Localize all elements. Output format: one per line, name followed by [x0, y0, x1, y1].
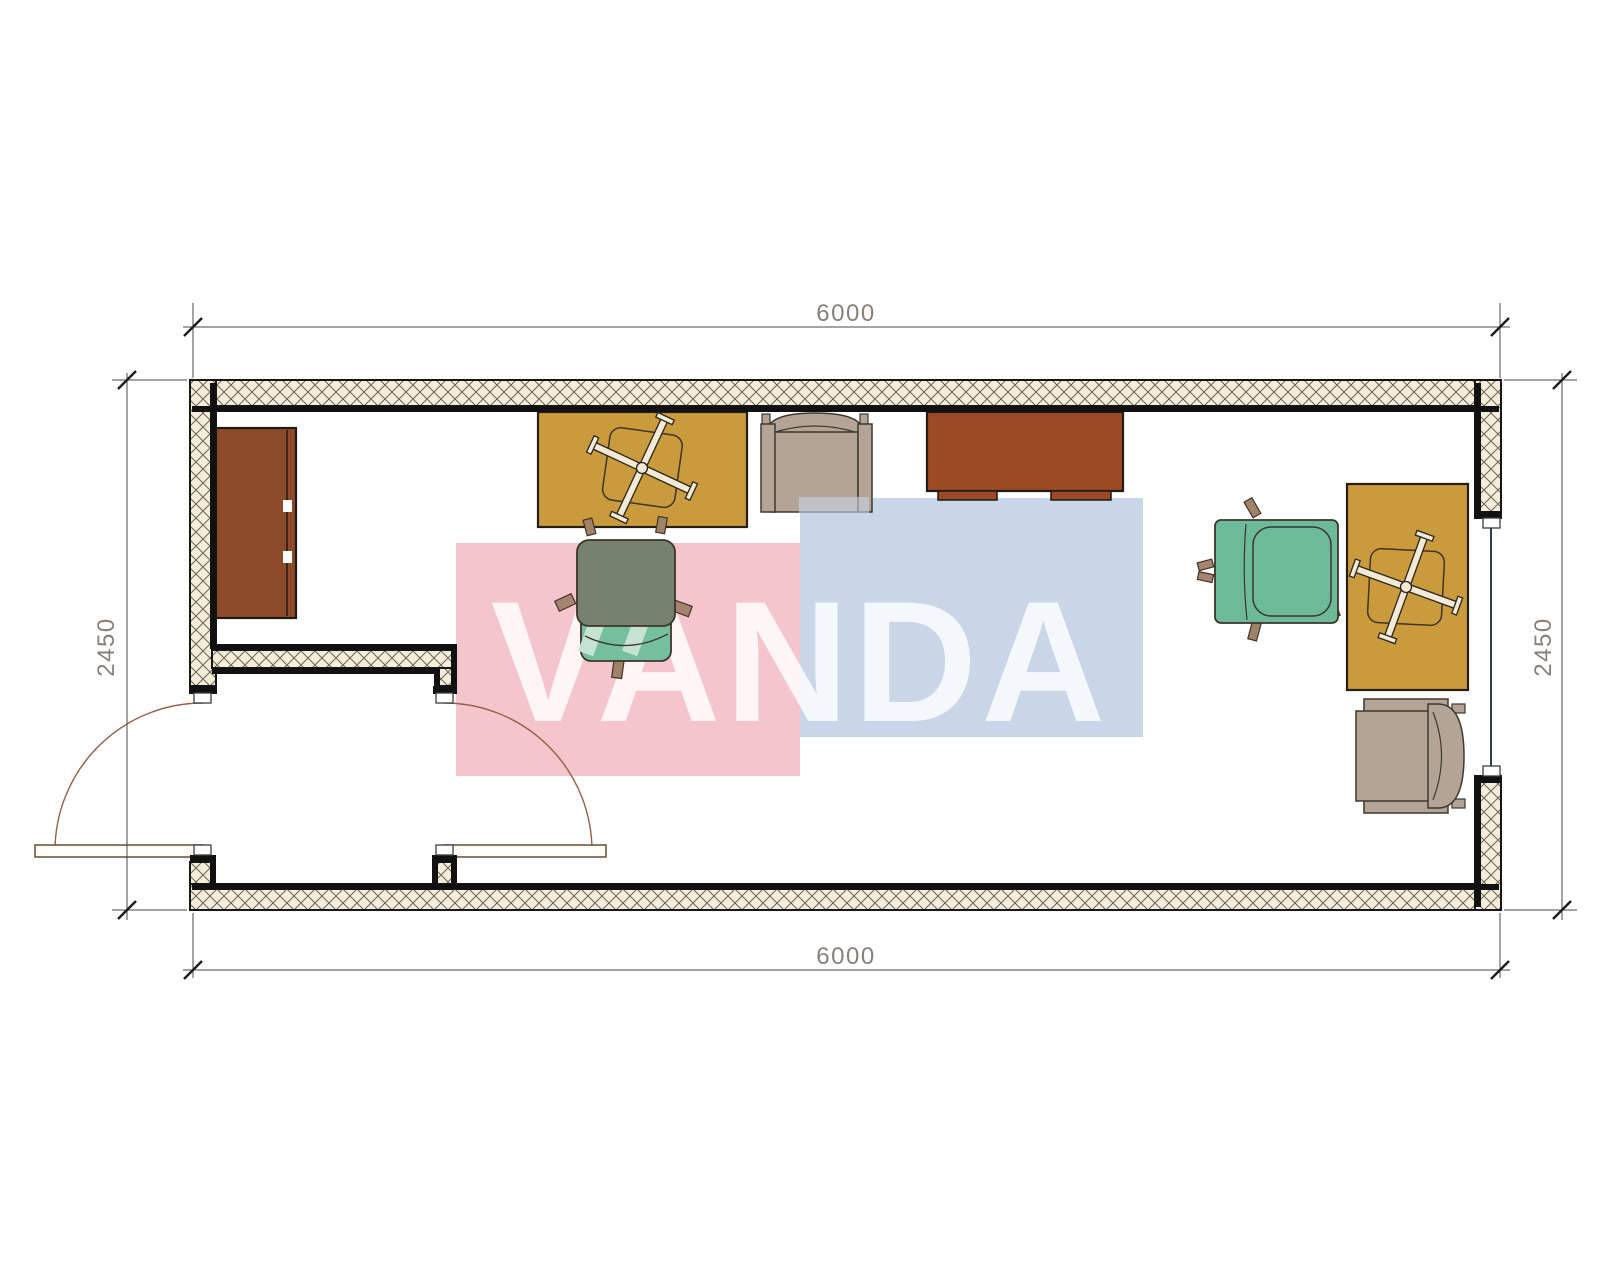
wall-end-cap	[190, 685, 216, 693]
credenza-desk	[927, 412, 1123, 500]
desk-right	[1333, 484, 1479, 690]
window-frame	[1483, 518, 1500, 528]
wall-end-cap	[1475, 511, 1501, 518]
door-frame	[194, 845, 211, 855]
wall-end-cap	[433, 855, 456, 862]
dimension-label-right: 2450	[1530, 617, 1557, 676]
wall-top	[190, 380, 1501, 406]
watermark-overlap-tint	[799, 497, 869, 514]
dimension-label-bottom: 6000	[816, 943, 875, 970]
dimension-label-left: 2450	[93, 617, 120, 676]
partition-wall	[212, 650, 455, 668]
wall-end-cap	[1475, 776, 1501, 783]
window-frame	[1483, 766, 1500, 776]
door-frame	[436, 845, 453, 855]
floor-plan-canvas: VANDA	[0, 0, 1600, 1280]
door-frame	[194, 693, 211, 703]
dimension-label-top: 6000	[816, 300, 875, 327]
door-frame	[436, 693, 453, 703]
wall-end-cap	[190, 855, 215, 862]
floor-plan-drawing: VANDA	[0, 0, 1600, 1280]
desk-top	[538, 392, 747, 543]
sideboard-cabinet	[216, 428, 296, 618]
door-leaf-left	[35, 845, 203, 857]
door-leaf-right	[444, 845, 606, 857]
armchair-bottom-right	[1356, 699, 1465, 813]
